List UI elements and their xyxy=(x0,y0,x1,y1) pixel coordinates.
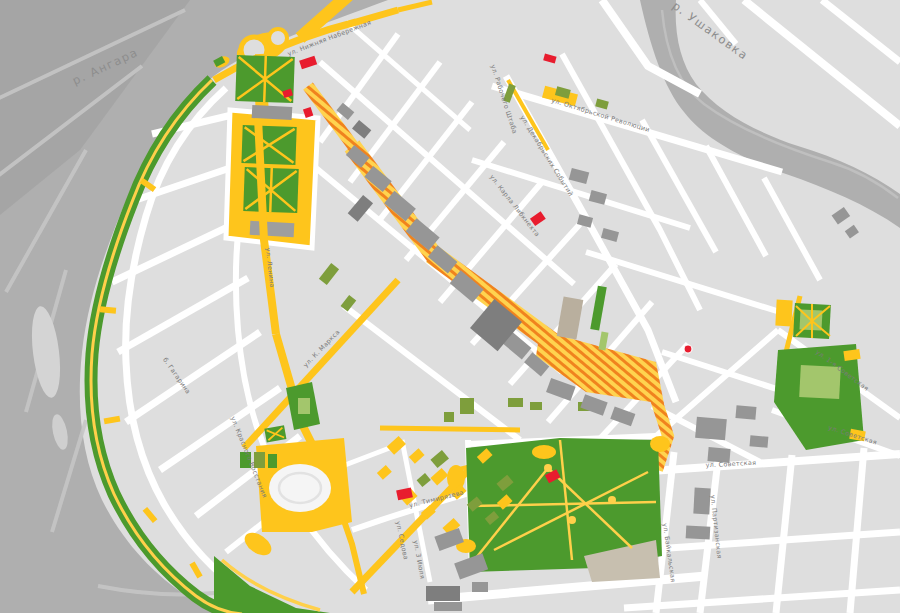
monument-marker xyxy=(684,345,692,353)
kirov-square xyxy=(226,110,318,248)
city-map: р. Ангарар. Ушаковкаул. Нижняя Набережна… xyxy=(0,0,900,613)
government-building xyxy=(250,221,295,237)
map-canvas: р. Ангарар. Ушаковкаул. Нижняя Набережна… xyxy=(0,0,900,613)
